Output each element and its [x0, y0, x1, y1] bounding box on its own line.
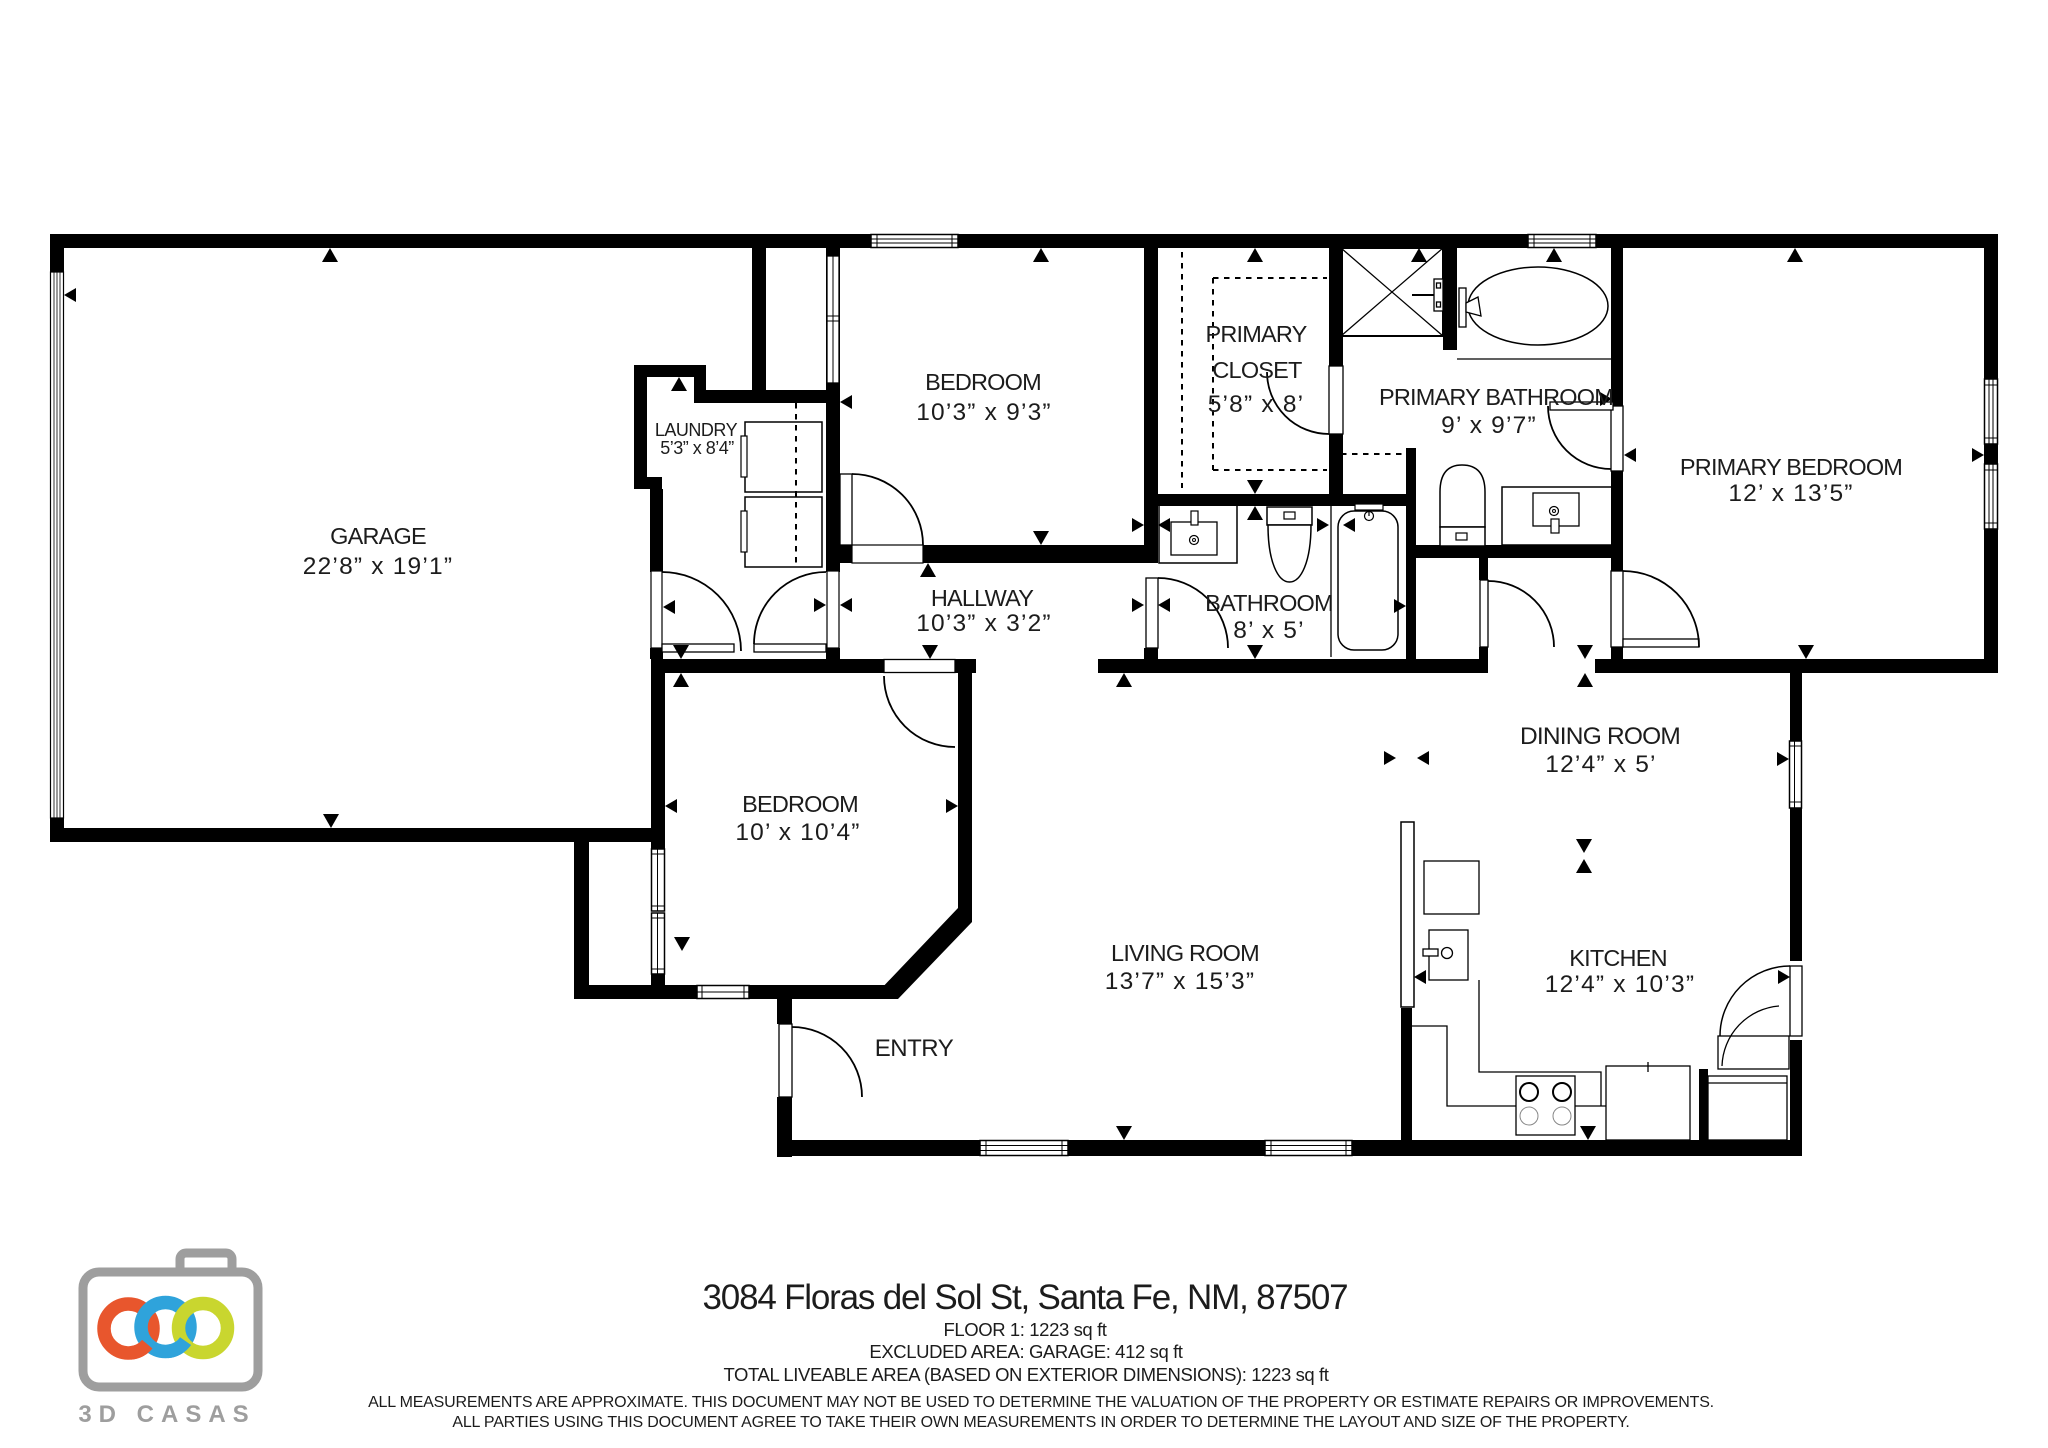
svg-text:KITCHEN: KITCHEN	[1569, 945, 1667, 971]
svg-text:HALLWAY: HALLWAY	[931, 585, 1034, 611]
svg-text:BATHROOM: BATHROOM	[1205, 590, 1333, 616]
svg-text:TOTAL LIVEABLE AREA (BASED ON: TOTAL LIVEABLE AREA (BASED ON EXTERIOR D…	[723, 1364, 1328, 1385]
svg-text:CLOSET: CLOSET	[1212, 357, 1302, 383]
svg-text:EXCLUDED AREA: GARAGE: 412 sq: EXCLUDED AREA: GARAGE: 412 sq ft	[869, 1341, 1182, 1362]
svg-text:PRIMARY BATHROOM: PRIMARY BATHROOM	[1379, 384, 1613, 410]
svg-text:12’4” x 5’: 12’4” x 5’	[1545, 751, 1656, 778]
svg-text:10’3” x 9’3”: 10’3” x 9’3”	[916, 399, 1052, 426]
svg-text:9’ x 9’7”: 9’ x 9’7”	[1441, 412, 1537, 439]
svg-text:BEDROOM: BEDROOM	[925, 369, 1041, 395]
svg-text:GARAGE: GARAGE	[330, 523, 426, 549]
svg-text:ENTRY: ENTRY	[875, 1035, 954, 1062]
svg-text:5’3” x 8’4”: 5’3” x 8’4”	[660, 438, 734, 458]
svg-text:8’ x 5’: 8’ x 5’	[1233, 617, 1305, 644]
svg-text:LIVING ROOM: LIVING ROOM	[1111, 940, 1259, 966]
svg-text:12’ x 13’5”: 12’ x 13’5”	[1728, 480, 1853, 507]
svg-text:BEDROOM: BEDROOM	[742, 791, 858, 817]
svg-text:5’8” x 8’: 5’8” x 8’	[1208, 391, 1305, 418]
svg-text:3D CASAS: 3D CASAS	[78, 1401, 255, 1428]
svg-text:10’3” x 3’2”: 10’3” x 3’2”	[916, 610, 1052, 637]
svg-text:PRIMARY: PRIMARY	[1205, 321, 1307, 347]
svg-text:12’4” x 10’3”: 12’4” x 10’3”	[1545, 971, 1695, 998]
svg-text:10’ x 10’4”: 10’ x 10’4”	[735, 819, 860, 846]
svg-text:LAUNDRY: LAUNDRY	[655, 420, 738, 440]
svg-text:ALL PARTIES USING THIS DOCUMEN: ALL PARTIES USING THIS DOCUMENT AGREE TO…	[452, 1414, 1629, 1431]
svg-text:22’8” x 19’1”: 22’8” x 19’1”	[303, 553, 453, 580]
svg-text:ALL MEASUREMENTS ARE APPROXIMA: ALL MEASUREMENTS ARE APPROXIMATE. THIS D…	[368, 1394, 1714, 1411]
svg-text:3084 Floras del Sol St, Santa: 3084 Floras del Sol St, Santa Fe, NM, 87…	[703, 1278, 1348, 1317]
svg-text:13’7” x 15’3”: 13’7” x 15’3”	[1105, 968, 1255, 995]
svg-text:FLOOR 1: 1223 sq ft: FLOOR 1: 1223 sq ft	[943, 1319, 1106, 1340]
svg-text:PRIMARY BEDROOM: PRIMARY BEDROOM	[1680, 454, 1902, 480]
svg-text:DINING ROOM: DINING ROOM	[1520, 723, 1680, 750]
